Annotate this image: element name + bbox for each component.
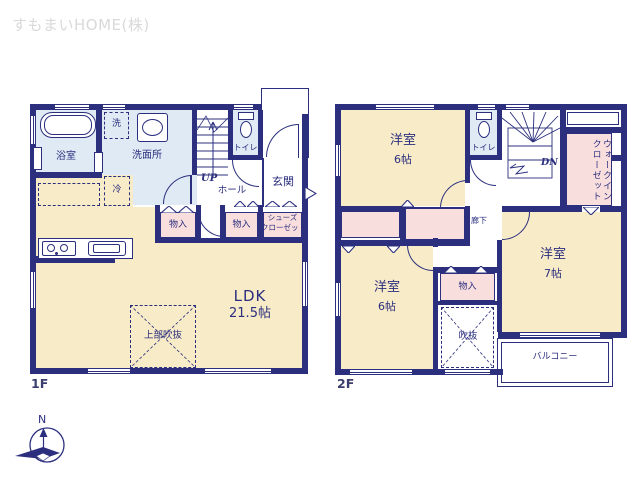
floor-label-2f: 2F — [337, 377, 354, 391]
wall — [433, 238, 438, 247]
room-label-bedroom1-size: 6帖 — [383, 154, 423, 167]
door-marker — [387, 246, 400, 253]
wall — [621, 104, 627, 338]
window — [335, 145, 341, 176]
room-label-bedroom3-size: 7帖 — [533, 268, 573, 281]
wall — [438, 301, 497, 305]
window — [478, 104, 495, 110]
door-marker — [401, 200, 414, 207]
room-label-bedroom2-size: 6帖 — [367, 301, 407, 314]
window — [506, 104, 529, 110]
room-label-toilet-2f: トイレ — [470, 143, 497, 152]
room-label-corridor: 廊下 — [471, 216, 487, 225]
room-label-void: 吹抜 — [452, 332, 484, 343]
door-marker — [342, 246, 355, 253]
wall — [560, 127, 627, 133]
compass-north-label: N — [38, 414, 46, 427]
window — [350, 369, 412, 375]
wall — [433, 268, 438, 373]
wall — [560, 110, 566, 212]
room-label-wic: ウォークインクローゼット — [567, 137, 611, 203]
balcony-inner-rail — [501, 342, 609, 383]
wall — [600, 206, 627, 212]
stairs-label-dn: DN — [541, 158, 558, 169]
door-marker — [583, 207, 599, 215]
wall — [497, 240, 502, 332]
room-label-bedroom2: 洋室 — [367, 281, 407, 296]
door-marker — [474, 266, 488, 273]
window — [376, 104, 434, 110]
toilet-icon — [478, 121, 490, 138]
room-label-bedroom1: 洋室 — [383, 134, 423, 149]
closet-b-2f — [405, 208, 465, 240]
room-label-bedroom3: 洋室 — [533, 248, 573, 263]
floorplan-page: すもまいHOME(株) — [0, 0, 640, 480]
door-arc-toilet-2f — [470, 160, 496, 186]
room-label-storage-2f: 物入 — [440, 282, 495, 292]
room-label-balcony: バルコニー — [525, 352, 585, 362]
window — [335, 283, 341, 316]
stair-landing-shelf — [567, 112, 619, 125]
toilet-icon — [476, 112, 492, 120]
closet-a-2f — [341, 210, 400, 238]
wall — [335, 206, 402, 212]
floor-plan-2f: 洋室 6帖 トイレ DN ウォークインクローゼット 廊下 洋室 6帖 物入 吹抜… — [0, 0, 640, 480]
door-marker — [444, 266, 458, 273]
window — [445, 369, 490, 375]
wall — [612, 155, 621, 161]
